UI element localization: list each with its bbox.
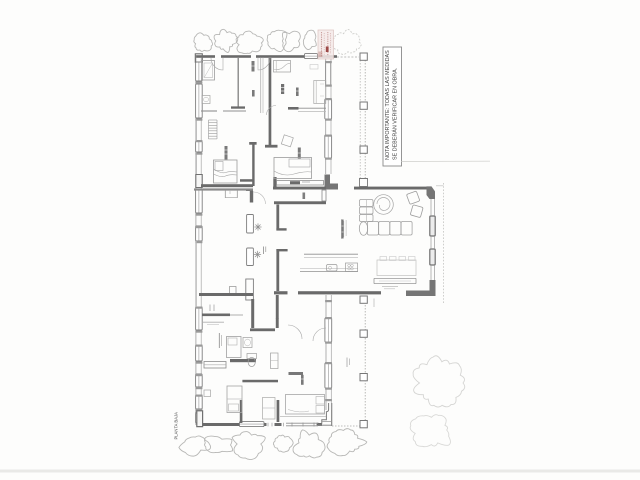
svg-text:SE DEBERÁN VERIFICAR EN OBRA.: SE DEBERÁN VERIFICAR EN OBRA.: [392, 68, 399, 160]
svg-text:PLANTA BAJA: PLANTA BAJA: [174, 412, 179, 440]
svg-text:NOTA IMPORTANTE: TODAS LAS MED: NOTA IMPORTANTE: TODAS LAS MEDIDAS: [385, 50, 391, 160]
